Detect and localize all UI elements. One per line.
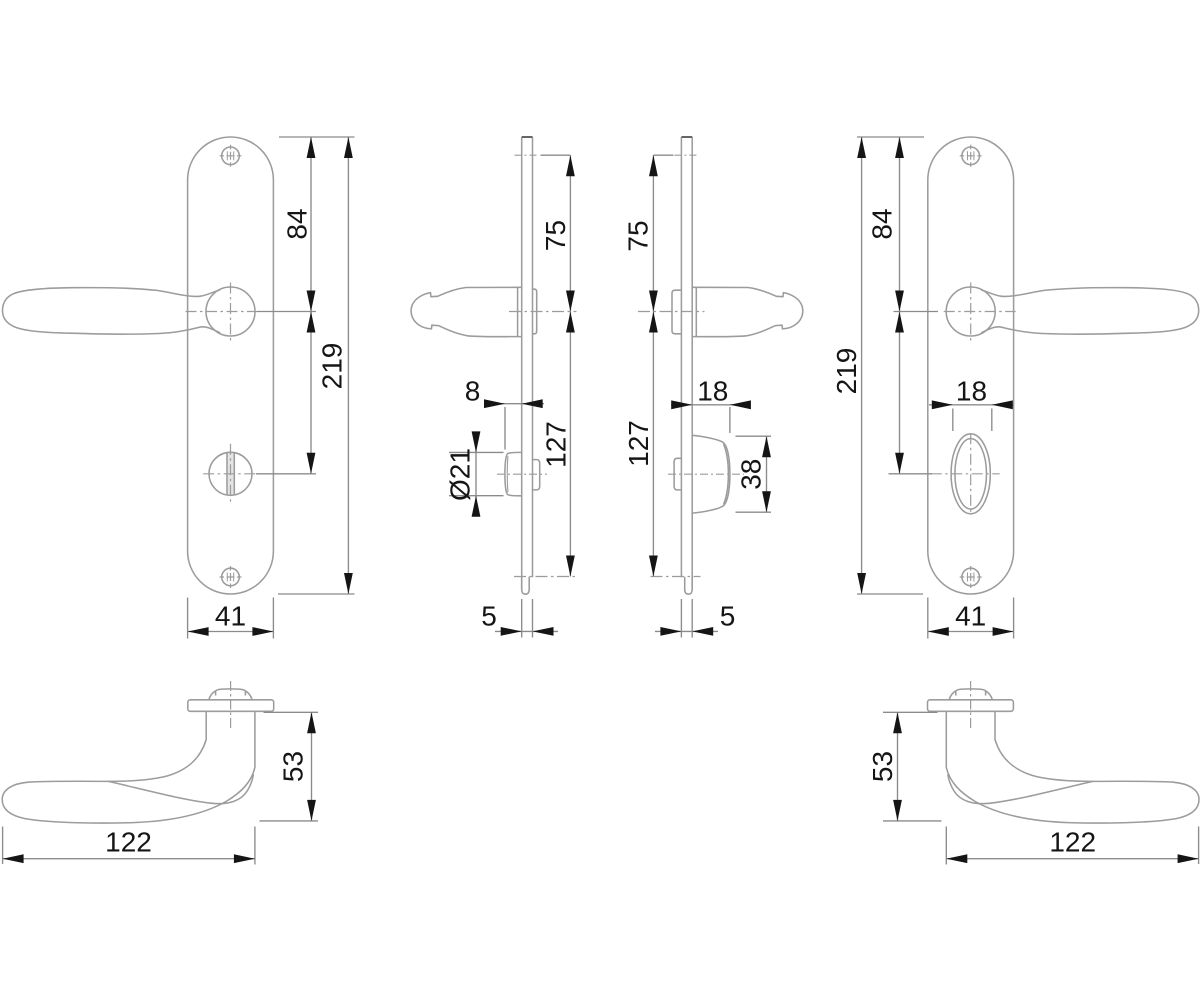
- svg-text:53: 53: [278, 751, 309, 782]
- svg-text:75: 75: [623, 220, 654, 251]
- svg-text:8: 8: [465, 376, 481, 407]
- svg-text:5: 5: [481, 601, 497, 632]
- svg-text:38: 38: [736, 459, 767, 490]
- svg-text:122: 122: [105, 827, 152, 858]
- svg-text:127: 127: [623, 420, 654, 467]
- svg-text:75: 75: [540, 220, 571, 251]
- svg-text:219: 219: [317, 343, 348, 390]
- svg-text:5: 5: [720, 601, 736, 632]
- svg-text:53: 53: [867, 751, 898, 782]
- svg-text:84: 84: [282, 208, 313, 239]
- svg-text:41: 41: [215, 601, 246, 632]
- svg-text:Ø21: Ø21: [445, 448, 476, 501]
- svg-text:84: 84: [867, 208, 898, 239]
- svg-text:18: 18: [956, 376, 987, 407]
- svg-text:127: 127: [541, 421, 572, 468]
- svg-text:18: 18: [697, 376, 728, 407]
- svg-text:219: 219: [831, 348, 862, 395]
- svg-text:41: 41: [955, 601, 986, 632]
- svg-text:122: 122: [1049, 827, 1096, 858]
